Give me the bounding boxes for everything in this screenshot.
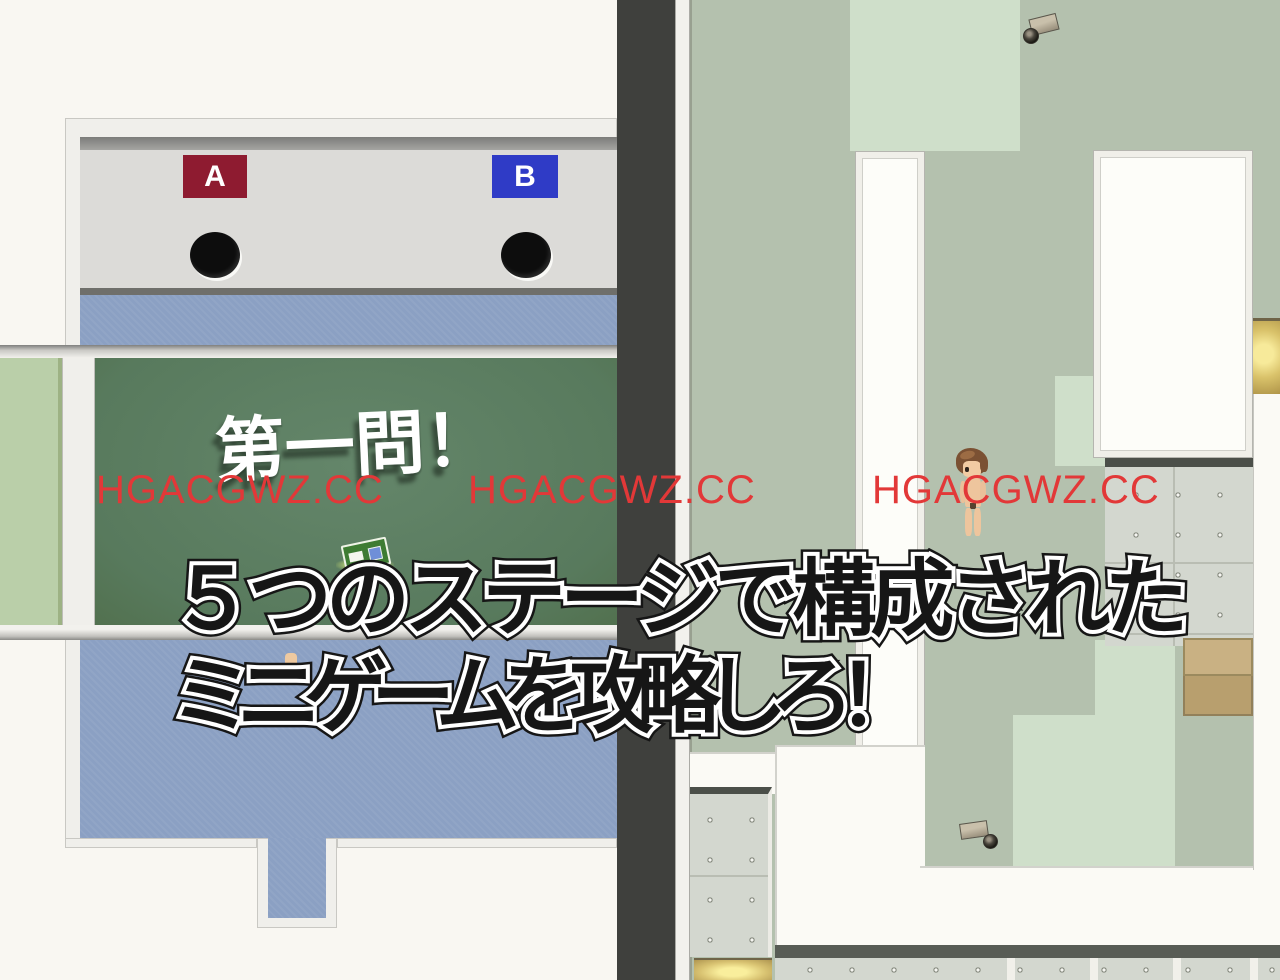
choice-b-sign: B [492,155,558,198]
gold-locker-bottom [694,958,772,980]
floor-light-top [850,0,1020,151]
corridor-horizontal [920,866,1280,946]
wall-gap [1090,958,1098,980]
camera-lens [1023,28,1039,44]
wall-bottom-lip [80,288,617,295]
watermark-1: HGACGWZ.CC [96,468,384,513]
board-band-top-bar [0,345,617,358]
camera-lens [983,834,998,849]
security-camera-bottom-icon [958,818,1004,862]
choice-a-label: A [204,160,226,194]
bottom-wall-panels [775,958,1280,980]
carpet-bottom-frame-left [65,838,257,848]
wall-gap [1007,958,1015,980]
wall-gap [1173,958,1181,980]
buzzer-button-a[interactable] [190,232,240,278]
carpet-bottom-frame-right [337,838,617,848]
wall-top-shadow [80,137,617,150]
panel-seam [690,875,768,877]
concrete-wall-left [690,787,772,957]
game-screenshot-stage: A B 第一問！ 第一問！ [0,0,1280,980]
caption-line1: ５つのステージで構成された ５つのステージで構成された ５つのステージで構成され… [170,557,1280,652]
wall-pillar-right [1093,150,1253,458]
watermark-2: HGACGWZ.CC [468,468,756,513]
buzzer-button-b[interactable] [501,232,551,278]
choice-b-label: B [514,160,536,194]
caption-line2-text: ミニゲームを攻略しろ！ [170,654,904,738]
caption-line1-text: ５つのステージで構成された [170,557,1182,641]
bottom-wall-top-strip [775,945,1280,958]
watermark-3: HGACGWZ.CC [872,468,1160,513]
left-grass-strip [0,358,62,625]
wall-gap [1250,958,1258,980]
choice-a-sign: A [183,155,247,198]
corridor-vertical [775,745,925,947]
doorway-carpet [268,838,326,918]
security-camera-top-icon [1020,10,1066,56]
caption-line2: ミニゲームを攻略しろ！ ミニゲームを攻略しろ！ ミニゲームを攻略しろ！ [170,654,1280,749]
gold-locker-right [1253,318,1280,394]
carpet-upper [80,295,617,345]
board-left-frame [62,358,95,625]
